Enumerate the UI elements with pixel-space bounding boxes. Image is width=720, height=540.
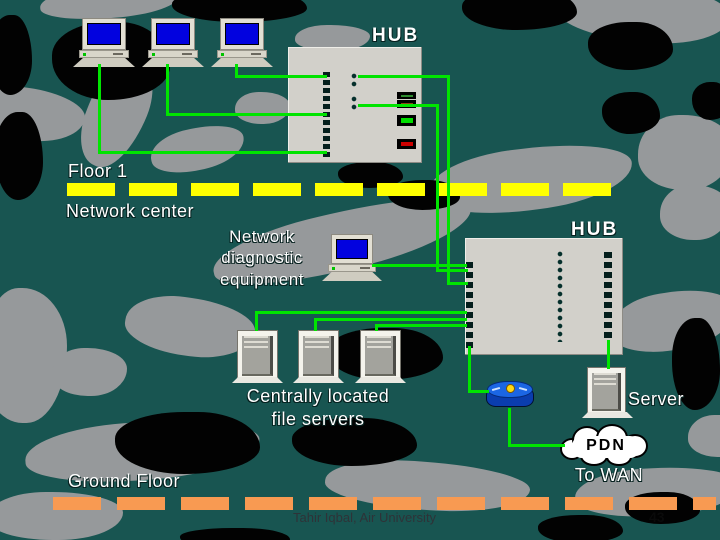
cable-hub-server bbox=[607, 340, 610, 369]
monitor bbox=[82, 18, 126, 50]
tower-face bbox=[303, 336, 334, 376]
cable-hub-uplink-a bbox=[447, 282, 468, 285]
cable-ws2 bbox=[166, 113, 327, 116]
tower-base bbox=[355, 377, 406, 383]
pedestal bbox=[322, 272, 382, 281]
diag-line1: Network bbox=[229, 227, 295, 246]
footer-credit: Tahir Iqbal, Air University bbox=[293, 510, 436, 525]
cable-ws1 bbox=[98, 64, 101, 154]
hub-right-right-port-strip bbox=[604, 252, 612, 342]
cable-fileserver2 bbox=[314, 318, 467, 321]
monitor bbox=[151, 18, 195, 50]
status-led-green bbox=[397, 115, 416, 126]
tower-slats bbox=[244, 336, 268, 350]
cable-ws3 bbox=[235, 75, 327, 78]
tower-face bbox=[365, 336, 396, 376]
cable-hub-uplink-b bbox=[436, 269, 468, 272]
status-led-strip bbox=[397, 92, 416, 99]
server-label: Server bbox=[628, 388, 684, 411]
pedestal bbox=[142, 58, 204, 67]
router-led bbox=[506, 384, 515, 393]
screen bbox=[225, 23, 259, 45]
pdn-label: PDN bbox=[560, 437, 652, 455]
cable-ws1 bbox=[98, 151, 327, 154]
hub-top-uplink-ports bbox=[351, 72, 357, 87]
screen bbox=[87, 23, 121, 45]
tower-slats bbox=[367, 336, 391, 350]
diag-line2: diagnostic bbox=[221, 248, 303, 267]
cable-hub-uplink-b bbox=[436, 104, 439, 272]
cable-hub-uplink-b bbox=[358, 104, 439, 107]
cable-diagnostic bbox=[372, 264, 467, 267]
hub-top-port-strip bbox=[323, 72, 330, 160]
hub-right-label: HUB bbox=[571, 218, 618, 242]
hub-top-uplink-ports bbox=[351, 95, 357, 110]
hub-top-label: HUB bbox=[372, 24, 419, 48]
page-number: 43 bbox=[649, 509, 665, 525]
workstation-icon bbox=[211, 18, 273, 67]
tower-slats bbox=[305, 336, 329, 350]
cable-fileserver1 bbox=[255, 311, 467, 314]
tower-face bbox=[592, 373, 621, 411]
file-servers-line2: file servers bbox=[271, 409, 364, 429]
workstation-icon bbox=[142, 18, 204, 67]
cable-fileserver3 bbox=[375, 324, 467, 327]
diagnostic-workstation-icon bbox=[322, 234, 382, 281]
diagnostic-equipment-label: Network diagnostic equipment bbox=[202, 226, 322, 290]
ground-floor-label: Ground Floor bbox=[68, 470, 180, 493]
ground-floor-divider bbox=[53, 497, 716, 510]
monitor bbox=[220, 18, 264, 50]
keyboard-slab bbox=[328, 264, 376, 272]
cable-router-pdn bbox=[508, 444, 565, 447]
floor1-divider bbox=[67, 183, 622, 196]
tower-slats bbox=[594, 373, 616, 387]
cable-ws2 bbox=[166, 64, 169, 116]
keyboard-slab bbox=[148, 50, 198, 58]
floor1-label: Floor 1 bbox=[68, 160, 128, 183]
cable-fileserver1 bbox=[255, 311, 258, 331]
screen bbox=[156, 23, 190, 45]
router-icon bbox=[486, 381, 534, 409]
pedestal bbox=[73, 58, 135, 67]
tower-base bbox=[232, 377, 283, 383]
server-tower-icon bbox=[587, 367, 626, 413]
keyboard-slab bbox=[79, 50, 129, 58]
cloud-icon: PDN bbox=[560, 424, 652, 468]
hub-right-mid-ports bbox=[557, 250, 563, 342]
keyboard-slab bbox=[217, 50, 267, 58]
tower-base bbox=[293, 377, 344, 383]
server-tower-icon bbox=[298, 330, 339, 378]
workstation-icon bbox=[73, 18, 135, 67]
cable-hub-router bbox=[468, 346, 471, 393]
file-servers-label: Centrally located file servers bbox=[218, 385, 418, 430]
server-tower-icon bbox=[360, 330, 401, 378]
file-servers-line1: Centrally located bbox=[247, 386, 390, 406]
hub-device-right bbox=[465, 238, 623, 355]
hub-right-left-port-strip bbox=[466, 262, 473, 350]
cable-router-pdn bbox=[508, 408, 511, 447]
status-led-red bbox=[397, 139, 416, 149]
cable-hub-uplink-a bbox=[358, 75, 450, 78]
screen bbox=[336, 239, 368, 259]
tower-face bbox=[242, 336, 273, 376]
network-center-label: Network center bbox=[66, 200, 194, 223]
slide-canvas: PDN HUB Floor 1 Network center Network d… bbox=[0, 0, 720, 540]
diag-line3: equipment bbox=[220, 270, 304, 289]
tower-base bbox=[582, 412, 633, 418]
server-tower-icon bbox=[237, 330, 278, 378]
cable-hub-uplink-a bbox=[447, 75, 450, 285]
cable-hub-router bbox=[468, 390, 489, 393]
to-wan-label: To WAN bbox=[562, 464, 656, 487]
monitor bbox=[331, 234, 373, 264]
pedestal bbox=[211, 58, 273, 67]
